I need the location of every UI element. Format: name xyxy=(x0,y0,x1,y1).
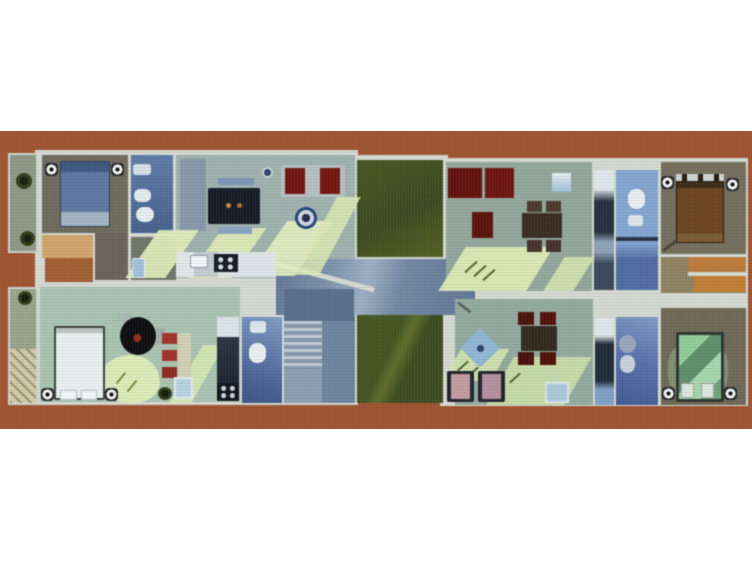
br-blue-table xyxy=(545,382,569,403)
tl-stove xyxy=(214,254,238,272)
tl-deck-orange xyxy=(45,258,93,282)
br-kitchen-floor xyxy=(595,318,614,405)
tl-tv-shelf xyxy=(218,178,254,185)
bl-bath-sink xyxy=(250,321,266,333)
tr-bath-toilet xyxy=(628,189,645,209)
balcony-plant-3 xyxy=(18,291,32,305)
tr-kitchen-floor xyxy=(594,170,614,290)
ceiling-light-marker-br-1 xyxy=(662,387,675,400)
tl-tv-table xyxy=(208,188,260,224)
tr-red-armchair xyxy=(472,212,493,238)
bl-side-table xyxy=(178,333,191,378)
tl-hallway-floor xyxy=(95,233,128,280)
tr-dining-chair-s2 xyxy=(546,240,561,252)
tl-washing-machine xyxy=(132,258,145,278)
bl-bath-toilet xyxy=(249,343,266,363)
br-armchair-1-cushion xyxy=(451,374,470,399)
ceiling-light-marker-tr-2 xyxy=(726,178,739,191)
tl-candle-2 xyxy=(237,203,242,208)
tl-floor-lamp xyxy=(262,167,273,178)
tr-dining-table xyxy=(522,213,562,238)
ceiling-light-marker-bl-1 xyxy=(41,388,54,401)
courtyard-top xyxy=(357,160,443,257)
bl-red-stool-2 xyxy=(162,350,177,361)
tl-console xyxy=(218,227,252,234)
br-rug-lamp xyxy=(477,345,484,352)
tr-terrace-plank-1 xyxy=(688,257,746,272)
tl-double-bed xyxy=(60,161,110,227)
ceiling-light-marker-tl-1 xyxy=(45,163,58,176)
tr-cabinet xyxy=(552,173,571,192)
balcony-plant-2 xyxy=(20,231,35,246)
tr-bath-sink xyxy=(628,215,643,226)
tl-bath-toilet xyxy=(134,189,151,202)
tr-sofa-2 xyxy=(485,168,514,198)
stairs-lower-landing xyxy=(284,369,322,403)
floorplan-photo xyxy=(0,131,752,429)
tr-dining-chair-n1 xyxy=(527,201,542,212)
ceiling-light-marker-bl-2 xyxy=(105,388,118,401)
tl-kitchen-sink xyxy=(190,255,208,268)
tl-bath-sink xyxy=(133,164,151,175)
bl-red-stool-1 xyxy=(162,333,177,344)
tr-dining-chair-n2 xyxy=(546,201,561,212)
tr-terrace-plank-2 xyxy=(694,276,746,292)
bl-potted-plant xyxy=(158,387,172,400)
ceiling-light-marker-tr-1 xyxy=(661,176,674,189)
courtyard-bottom xyxy=(357,315,443,403)
bl-pillow-1 xyxy=(60,390,77,400)
tl-terrace-tan xyxy=(42,235,93,258)
bl-blue-table xyxy=(174,377,193,399)
br-dining-chair-s1 xyxy=(518,352,534,365)
top-white-margin xyxy=(0,0,752,131)
stairs-upper-landing xyxy=(284,289,354,321)
tr-dining-chair-s1 xyxy=(527,240,542,252)
ceiling-light-marker-br-2 xyxy=(724,387,737,400)
bl-fridge xyxy=(217,317,239,337)
bl-double-bed xyxy=(54,326,105,400)
tl-candle-1 xyxy=(226,203,231,208)
tl-round-rug xyxy=(293,205,319,231)
tl-entry-floor xyxy=(180,159,206,231)
br-bath-stool xyxy=(619,335,636,353)
tl-sofa-cushion-left xyxy=(285,168,305,194)
balcony-tile-pattern xyxy=(10,349,36,403)
br-pillow-2 xyxy=(701,383,714,398)
tr-double-bed xyxy=(676,181,724,243)
br-pillow-1 xyxy=(681,383,694,398)
br-dining-chair-s2 xyxy=(540,352,556,365)
bl-stove xyxy=(217,383,239,401)
bl-pillow-2 xyxy=(81,390,97,400)
tr-sofa-1 xyxy=(448,168,482,198)
br-dining-table xyxy=(521,326,557,351)
floorplan-scene xyxy=(0,131,752,429)
br-bath-toilet xyxy=(620,355,635,373)
bl-kitchen-counter xyxy=(217,337,239,383)
ceiling-light-marker-tl-2 xyxy=(111,163,124,176)
tl-bath-bidet xyxy=(136,207,154,222)
page-canvas xyxy=(0,0,752,564)
tr-bathroom-floor xyxy=(616,170,658,290)
bottom-white-margin xyxy=(0,429,752,564)
balcony-plant-1 xyxy=(16,173,32,189)
staircase-steps xyxy=(284,321,322,369)
br-dining-chair-n2 xyxy=(540,312,556,325)
tl-sofa-cushion-right xyxy=(320,168,340,194)
br-armchair-2-cushion xyxy=(482,374,501,399)
br-dining-chair-n1 xyxy=(518,312,534,325)
bl-round-table xyxy=(120,317,156,355)
tr-shower-divider xyxy=(616,237,658,241)
